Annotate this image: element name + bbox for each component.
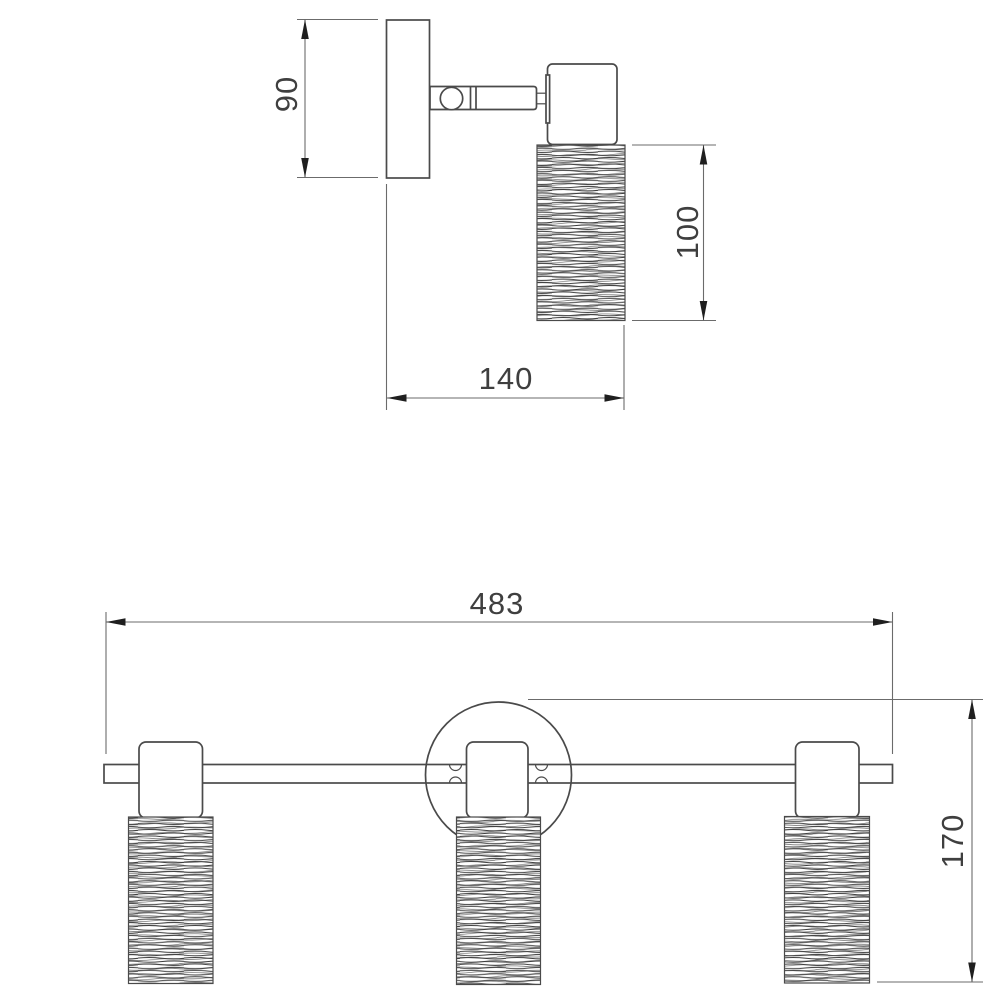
arrow-left-icon xyxy=(387,394,407,402)
lamp-shade-1 xyxy=(129,817,214,984)
arrow-up-icon xyxy=(301,20,309,40)
lamp-holder-3 xyxy=(796,742,860,818)
screw-icon xyxy=(536,765,548,771)
lamp-head xyxy=(548,64,618,145)
head-mount-tab xyxy=(546,75,550,123)
dimension-170 xyxy=(528,700,983,983)
screw-icon xyxy=(450,765,462,771)
lamp-shade-3 xyxy=(785,817,870,984)
drawing-linework xyxy=(0,0,1000,1000)
arrow-right-icon xyxy=(605,394,625,402)
dimension-140 xyxy=(387,325,624,410)
arrow-down-icon xyxy=(968,963,976,983)
pivot-ball xyxy=(440,87,462,109)
arrow-down-icon xyxy=(301,158,309,178)
technical-drawing-lamp: 90 100 140 483 170 xyxy=(0,0,1000,1000)
lamp-holder-2 xyxy=(467,742,529,818)
wall-plate xyxy=(387,20,430,178)
lamp-shade-2 xyxy=(457,817,541,985)
lamp-holder-1 xyxy=(139,742,203,818)
dimension-90 xyxy=(297,20,378,178)
front-view-three-spots xyxy=(104,612,983,985)
screw-icon xyxy=(450,777,462,783)
arrow-up-icon xyxy=(968,700,976,720)
pivot-arm xyxy=(430,87,537,110)
arrow-down-icon xyxy=(700,301,708,321)
dimension-483 xyxy=(106,612,893,754)
arrow-left-icon xyxy=(106,618,126,626)
dimension-100 xyxy=(632,145,716,321)
arrow-right-icon xyxy=(873,618,893,626)
lamp-shade-side xyxy=(537,145,625,321)
arrow-up-icon xyxy=(700,145,708,165)
side-view-single-spot xyxy=(297,20,716,411)
screw-icon xyxy=(536,777,548,783)
